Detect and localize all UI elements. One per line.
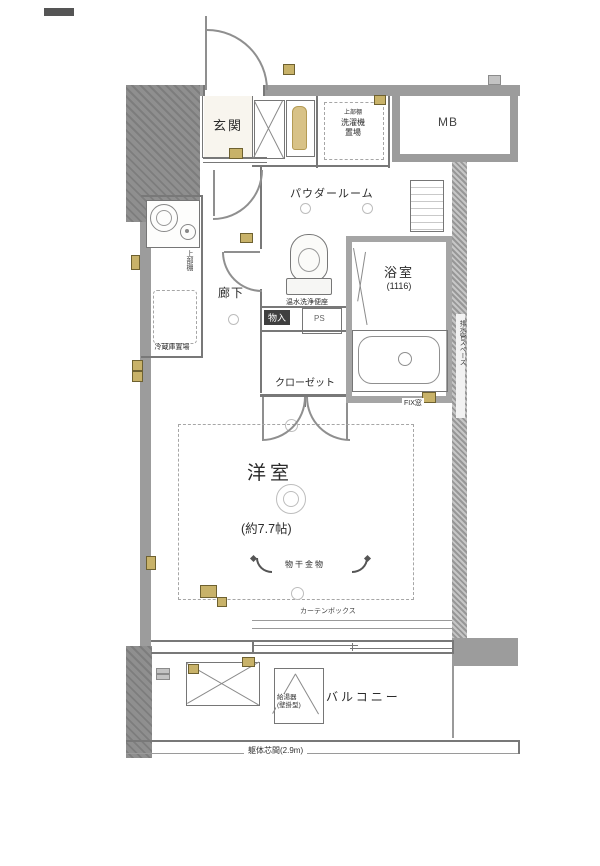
toilet-note: 温水洗浄便座 [267, 297, 347, 307]
outlet-symbol [132, 371, 143, 382]
ceiling-light-symbol [283, 491, 299, 507]
ceiling-symbol [362, 203, 373, 214]
closet-label: クローゼット [262, 374, 348, 389]
balcony-rail [126, 753, 520, 754]
stove-icon-dot [185, 229, 189, 233]
umbrella-icon [292, 106, 307, 150]
laundry-label: 上部棚 洗濯機 置場 [322, 110, 384, 138]
doorbell-symbol [283, 64, 295, 75]
outlet-symbol [374, 95, 386, 105]
bath-size: (1116) [368, 281, 430, 291]
ceiling-symbol [228, 314, 239, 325]
toilet-bowl-inner [298, 248, 320, 272]
balcony-side-line [452, 666, 454, 738]
sink-icon-inner [156, 210, 172, 226]
small-note-mark [156, 674, 170, 680]
partition [252, 96, 253, 158]
partition [252, 165, 390, 167]
partition [201, 195, 203, 358]
wall-bottom [151, 640, 252, 642]
curtain-box-line [252, 620, 452, 621]
window-frame [252, 652, 454, 654]
wall-left [140, 222, 151, 648]
ceiling-symbol [291, 587, 304, 600]
corner-mark [44, 8, 74, 16]
room-size-label: (約7.7帖) [241, 518, 292, 537]
window-frame [252, 640, 254, 654]
toilet-tank [286, 278, 332, 295]
curtain-box-label: カーテンボックス [300, 606, 356, 616]
room-label-powder: パウダールーム [290, 185, 374, 201]
switch-symbol [422, 392, 436, 403]
bath-wall [346, 396, 452, 403]
curtain-box-line [252, 628, 452, 629]
outlet-symbol [217, 597, 227, 607]
room-label-bath: 浴室 (1116) [368, 262, 430, 291]
laundry-label-line1: 洗濯機 [322, 118, 384, 128]
laundry-label-line2: 置場 [322, 128, 384, 138]
mb-wall [392, 96, 400, 162]
balcony-rail-end [518, 740, 520, 754]
partition [141, 195, 203, 197]
door-swing-arc [213, 170, 263, 220]
floor-plan: MB 玄関 上部棚 洗濯機 置場 パウダールーム 温水洗浄便座 廊下 [0, 0, 600, 866]
hanger-label: 物干金物 [285, 559, 325, 570]
partition [316, 96, 318, 168]
ps-label: PS [314, 314, 325, 323]
switch-symbol [229, 148, 243, 159]
laundry-shelf-label: 上部棚 [322, 110, 384, 118]
mb-label: MB [438, 115, 458, 129]
mb-wall [510, 96, 518, 162]
wall-bottom-right [452, 638, 518, 666]
fridge-space [153, 290, 197, 344]
room-label-main: 洋室 [247, 458, 293, 485]
genkan-step [203, 162, 267, 163]
window-frame [452, 640, 454, 654]
room-label-genkan: 玄関 [213, 115, 243, 134]
wall-bottom [151, 652, 252, 654]
bath-name: 浴室 [368, 262, 430, 281]
room-label-balcony: バルコニー [326, 688, 401, 705]
water-heater-line2: (壁掛型) [277, 702, 301, 710]
light-symbol [242, 657, 255, 667]
storage-label: 物入 [264, 310, 290, 325]
pipe-note: 排水管スペース [456, 320, 466, 416]
balcony-rail [126, 740, 520, 742]
partition [388, 96, 390, 168]
outlet-symbol [188, 664, 199, 674]
drain-icon [398, 352, 412, 366]
kitchen-shelf-note: 上部棚 [184, 250, 194, 296]
fix-window-label: FIX窓 [402, 398, 424, 408]
mb-wall [392, 154, 518, 162]
vent-symbol [488, 75, 501, 85]
outlet-symbol [131, 255, 140, 270]
window-sash [350, 648, 454, 649]
fridge-label: 冷蔵庫置場 [141, 342, 203, 352]
window-meeting-rail [352, 643, 353, 651]
partition [202, 96, 203, 158]
ceiling-symbol [300, 203, 311, 214]
tv-outlet-symbol [200, 585, 217, 598]
room-label-hallway: 廊下 [218, 284, 244, 301]
dimension-label: 躯体芯間(2.9m) [244, 745, 307, 756]
partition [141, 356, 203, 358]
window-frame [252, 640, 454, 642]
window-sash [252, 645, 358, 646]
outlet-symbol [146, 556, 156, 570]
water-heater-label: 給湯器 (壁掛型) [276, 694, 302, 710]
front-door-swing-arc [207, 29, 268, 90]
switch-symbol [240, 233, 253, 243]
bath-wall [346, 236, 452, 242]
water-heater-line1: 給湯器 [277, 694, 301, 702]
outlet-symbol [132, 360, 143, 371]
linen-shelf [410, 180, 444, 232]
